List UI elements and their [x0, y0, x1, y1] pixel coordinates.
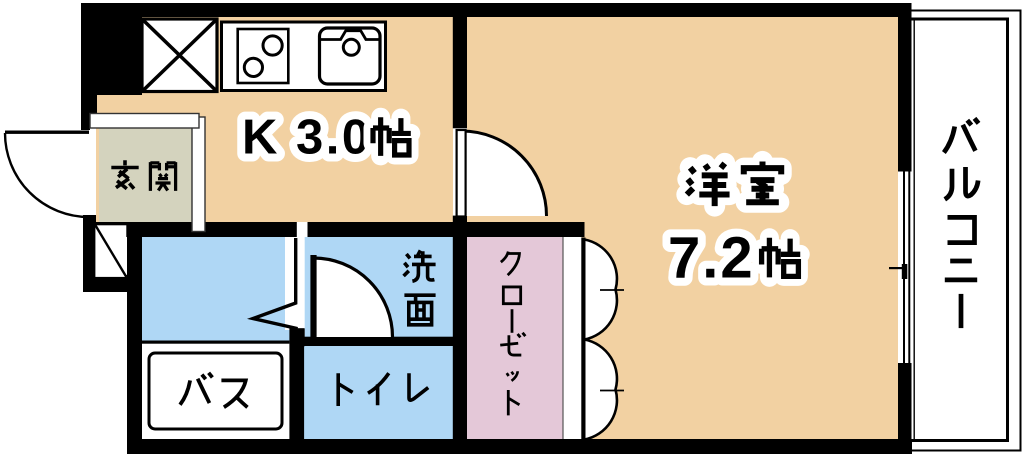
- svg-text:7.2: 7.2: [668, 226, 755, 291]
- svg-text:K 3.0: K 3.0: [242, 111, 372, 165]
